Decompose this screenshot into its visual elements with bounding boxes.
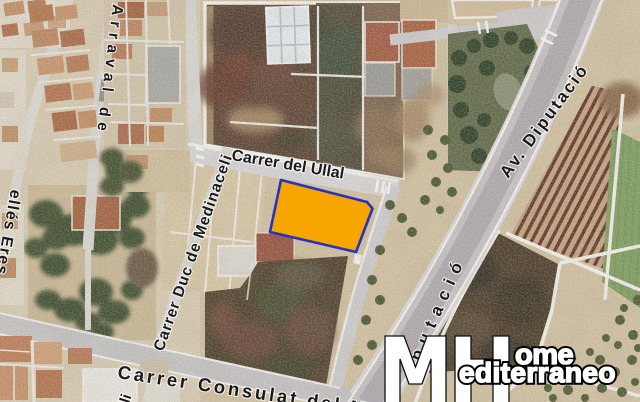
svg-text:editerraneo: editerraneo — [459, 357, 616, 388]
